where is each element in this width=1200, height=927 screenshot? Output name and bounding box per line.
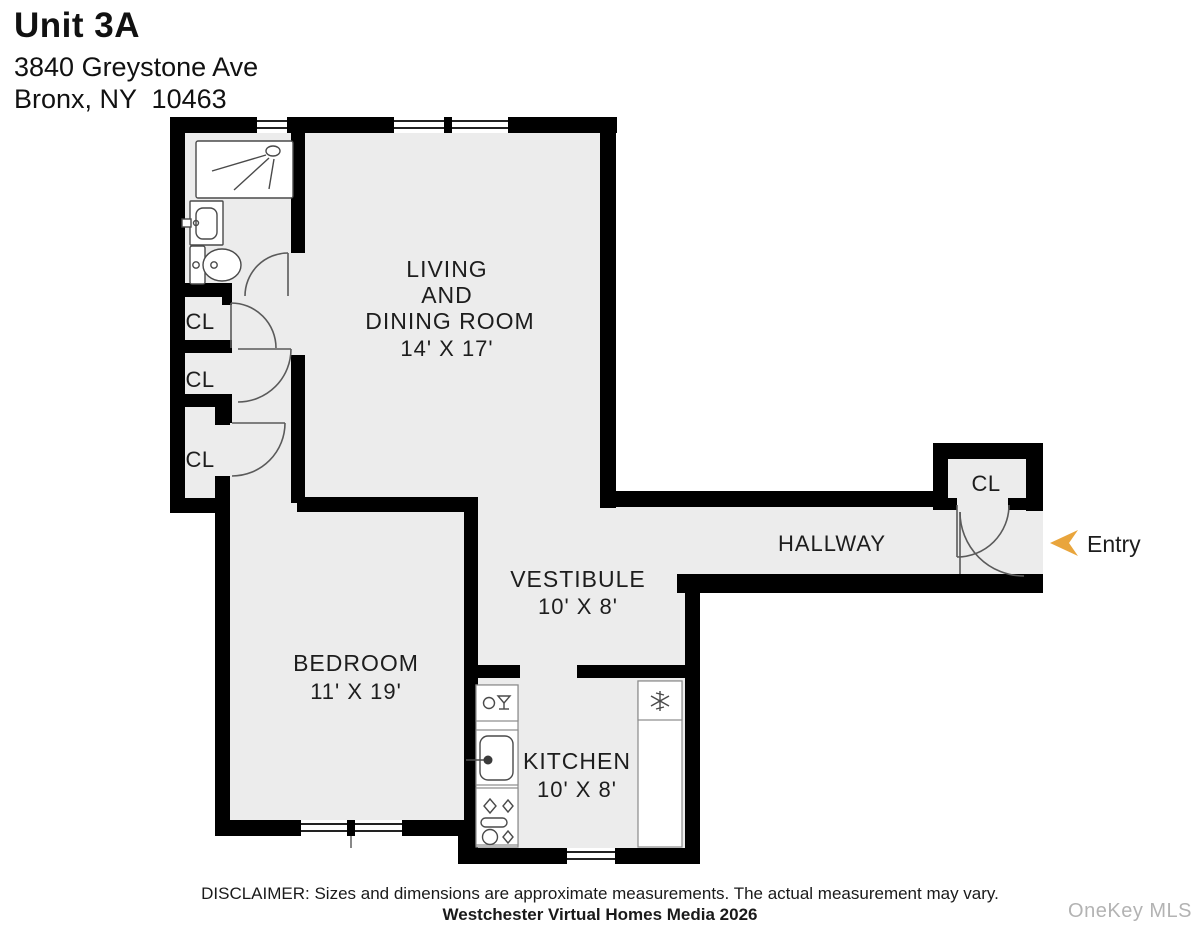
entry-arrow-icon (1050, 530, 1078, 556)
entry-label: Entry (1087, 531, 1141, 557)
toilet-icon (190, 246, 241, 284)
living-dims: 14' X 17' (400, 336, 493, 361)
shower-icon (196, 141, 293, 198)
window-kitchen (562, 848, 620, 864)
entry-closet-label: CL (971, 471, 1000, 496)
dishwasher-icon (476, 685, 518, 721)
closet2-label: CL (185, 367, 214, 392)
living-label-line1: LIVING (406, 256, 487, 282)
vestibule-dims: 10' X 8' (538, 594, 618, 619)
stove-icon (476, 788, 518, 845)
kitchen-dims: 10' X 8' (537, 777, 617, 802)
window-living (388, 117, 514, 133)
hallway-label: HALLWAY (778, 531, 886, 556)
bedroom-dims: 11' X 19' (310, 679, 402, 704)
window-bedroom (295, 820, 408, 848)
closet1-label: CL (185, 309, 214, 334)
fridge-icon (638, 681, 682, 720)
living-label-line3: DINING ROOM (365, 308, 534, 334)
floorplan-svg: LIVING AND DINING ROOM 14' X 17' BEDROOM… (0, 0, 1200, 927)
disclaimer-text: DISCLAIMER: Sizes and dimensions are app… (0, 884, 1200, 904)
credit-text: Westchester Virtual Homes Media 2026 (0, 905, 1200, 925)
closet3-label: CL (185, 447, 214, 472)
vestibule-label: VESTIBULE (510, 566, 646, 592)
bedroom-label: BEDROOM (293, 650, 419, 676)
living-label-line2: AND (421, 282, 473, 308)
onekey-mls-watermark: OneKey MLS (1068, 900, 1192, 923)
entry-marker: Entry (1050, 530, 1141, 557)
kitchen-label: KITCHEN (523, 748, 631, 774)
window-bathroom (252, 117, 292, 133)
